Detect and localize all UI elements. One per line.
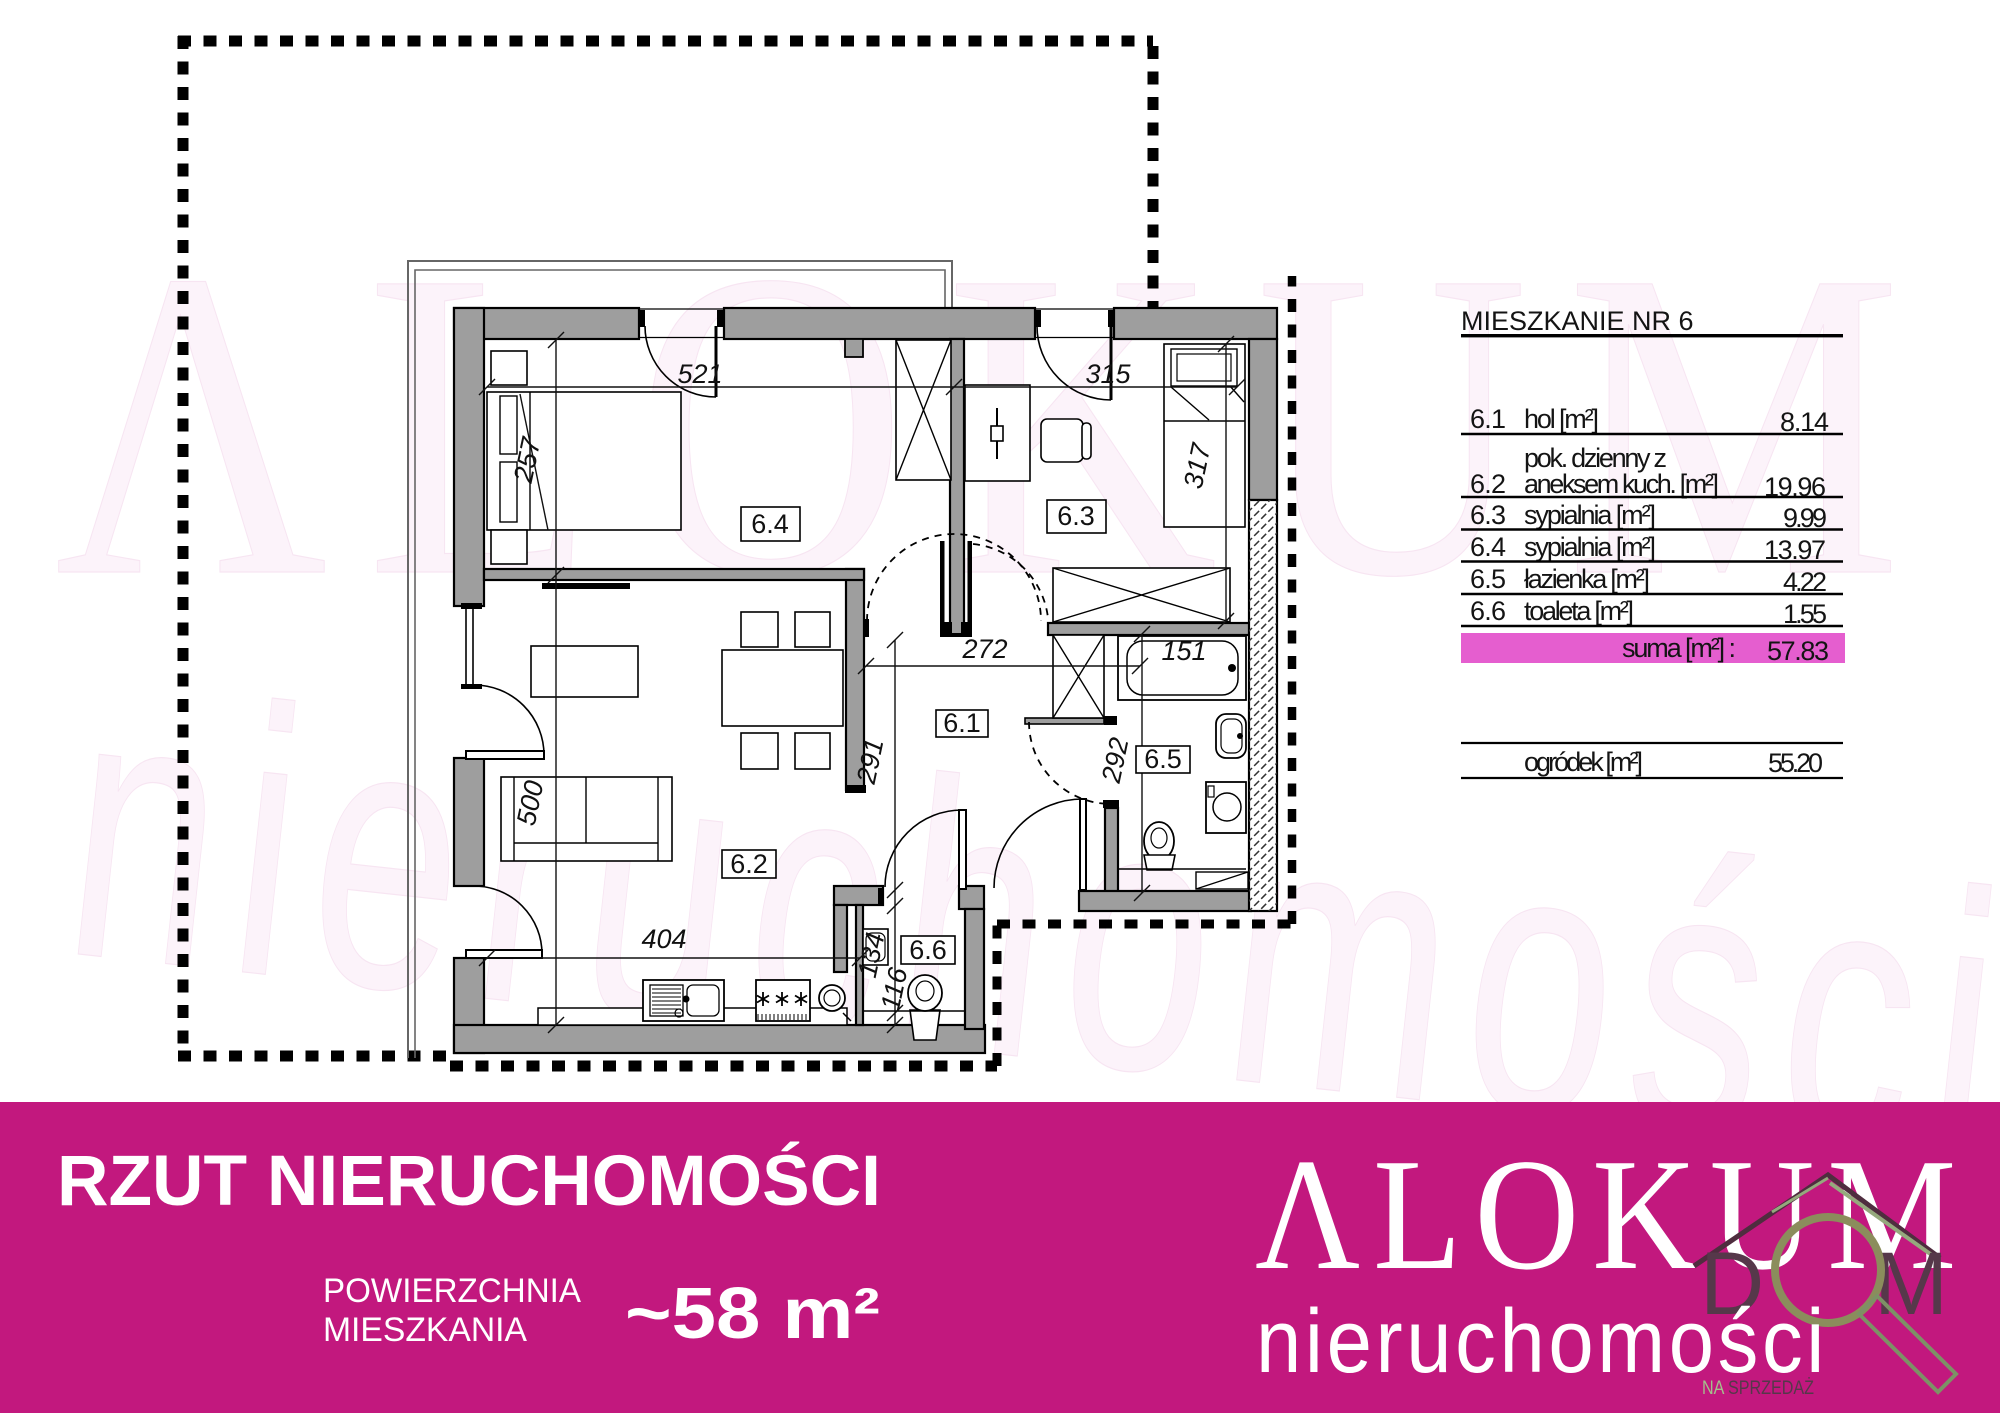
svg-text:6.3: 6.3: [1470, 500, 1506, 530]
svg-text:ogródek [m²]: ogródek [m²]: [1524, 747, 1643, 777]
svg-text:MIESZKANIE NR 6: MIESZKANIE NR 6: [1461, 306, 1694, 336]
svg-text:NA SPRZEDAŻ: NA SPRZEDAŻ: [1702, 1378, 1814, 1399]
svg-text:POWIERZCHNIA: POWIERZCHNIA: [323, 1272, 581, 1310]
svg-text:6.2: 6.2: [1470, 469, 1506, 499]
svg-text:55.20: 55.20: [1768, 748, 1823, 778]
svg-text:272: 272: [961, 634, 1007, 664]
svg-text:6.2: 6.2: [730, 849, 768, 879]
svg-text:8.14: 8.14: [1780, 407, 1829, 437]
svg-text:4.22: 4.22: [1783, 567, 1827, 597]
svg-text:nieruchomości: nieruchomości: [1256, 1292, 1828, 1392]
svg-text:404: 404: [641, 924, 686, 954]
svg-text:521: 521: [677, 359, 722, 389]
svg-text:6.6: 6.6: [1470, 596, 1506, 626]
svg-text:aneksem kuch. [m²]: aneksem kuch. [m²]: [1524, 469, 1719, 499]
svg-text:6.5: 6.5: [1470, 564, 1506, 594]
svg-text:6.5: 6.5: [1144, 744, 1182, 774]
svg-text:RZUT NIERUCHOMOŚCI: RZUT NIERUCHOMOŚCI: [57, 1142, 881, 1221]
svg-text:151: 151: [1161, 636, 1206, 666]
svg-text:~58 m²: ~58 m²: [625, 1274, 880, 1354]
svg-text:6.6: 6.6: [909, 935, 947, 965]
svg-text:315: 315: [1085, 359, 1131, 389]
svg-text:6.1: 6.1: [943, 708, 981, 738]
svg-text:MIESZKANIA: MIESZKANIA: [323, 1311, 527, 1349]
svg-text:łazienka [m²]: łazienka [m²]: [1524, 564, 1650, 594]
svg-text:sypialnia [m²]: sypialnia [m²]: [1524, 532, 1656, 562]
svg-text:M: M: [1874, 1233, 1948, 1333]
svg-text:suma [m²] :: suma [m²] :: [1622, 633, 1736, 663]
svg-text:6.4: 6.4: [751, 509, 789, 539]
svg-text:6.4: 6.4: [1470, 532, 1506, 562]
svg-text:ΛLOKUM: ΛLOKUM: [1255, 1125, 1969, 1303]
svg-text:6.3: 6.3: [1057, 501, 1095, 531]
svg-text:6.1: 6.1: [1470, 404, 1506, 434]
svg-text:1.55: 1.55: [1783, 599, 1827, 629]
svg-text:sypialnia [m²]: sypialnia [m²]: [1524, 500, 1656, 530]
svg-text:toaleta [m²]: toaleta [m²]: [1524, 596, 1634, 626]
svg-text:hol [m²]: hol [m²]: [1524, 404, 1599, 434]
svg-text:57.83: 57.83: [1767, 636, 1829, 666]
